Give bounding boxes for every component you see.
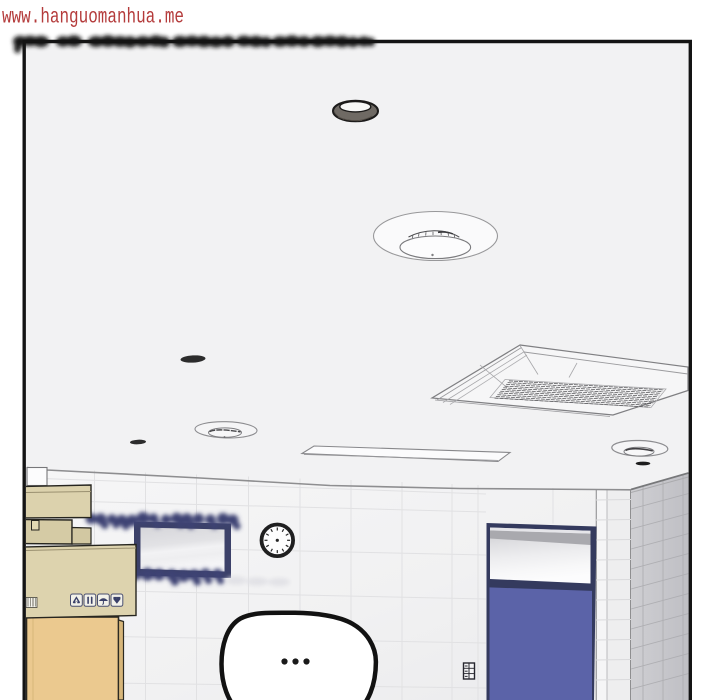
svg-text:www.hanguomanhua.me: www.hanguomanhua.me — [2, 7, 184, 30]
